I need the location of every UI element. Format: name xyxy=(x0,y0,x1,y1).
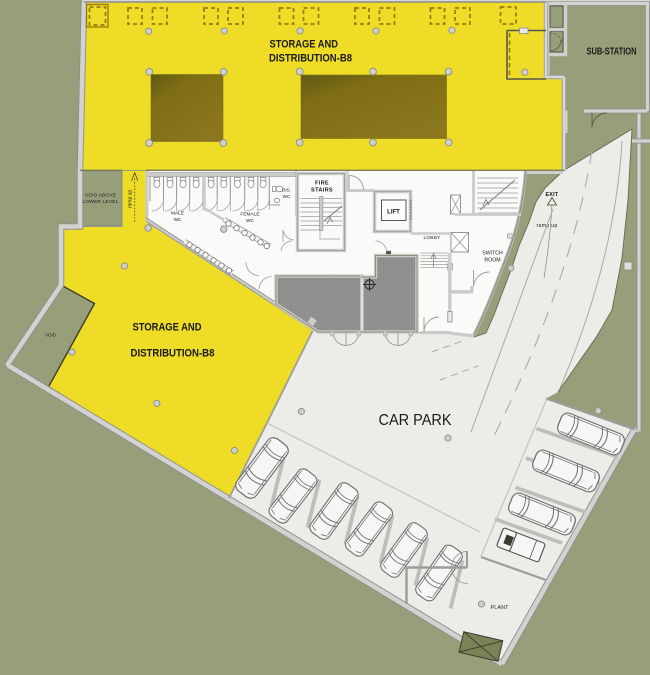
svg-text:VOID ABOVE: VOID ABOVE xyxy=(85,193,116,199)
svg-text:DIS.: DIS. xyxy=(282,188,291,193)
svg-text:VOID: VOID xyxy=(45,333,57,338)
svg-text:SWITCH: SWITCH xyxy=(482,251,503,257)
svg-text:MALE: MALE xyxy=(171,211,184,217)
svg-text:STAIRS: STAIRS xyxy=(311,188,333,194)
svg-text:ramp up: ramp up xyxy=(128,190,134,209)
svg-text:SUB-STATION: SUB-STATION xyxy=(587,47,637,58)
svg-text:WC: WC xyxy=(174,217,183,223)
svg-text:STORAGE AND: STORAGE AND xyxy=(270,39,339,51)
svg-text:LOWER LEVEL: LOWER LEVEL xyxy=(82,199,118,205)
svg-text:WC: WC xyxy=(283,194,291,199)
svg-text:FIRE: FIRE xyxy=(315,181,329,187)
svg-text:DISTRIBUTION-B8: DISTRIBUTION-B8 xyxy=(269,52,352,64)
svg-text:WC: WC xyxy=(246,218,255,224)
svg-text:PLANT: PLANT xyxy=(491,605,510,611)
svg-text:STORAGE AND: STORAGE AND xyxy=(133,322,202,334)
svg-text:LIFT: LIFT xyxy=(387,210,400,216)
svg-text:FEMALE: FEMALE xyxy=(240,212,259,218)
svg-text:CAR PARK: CAR PARK xyxy=(379,412,453,429)
svg-text:ROOM: ROOM xyxy=(484,258,500,264)
svg-text:DISTRIBUTION-B8: DISTRIBUTION-B8 xyxy=(131,347,215,359)
svg-text:LOBBY: LOBBY xyxy=(424,235,442,241)
